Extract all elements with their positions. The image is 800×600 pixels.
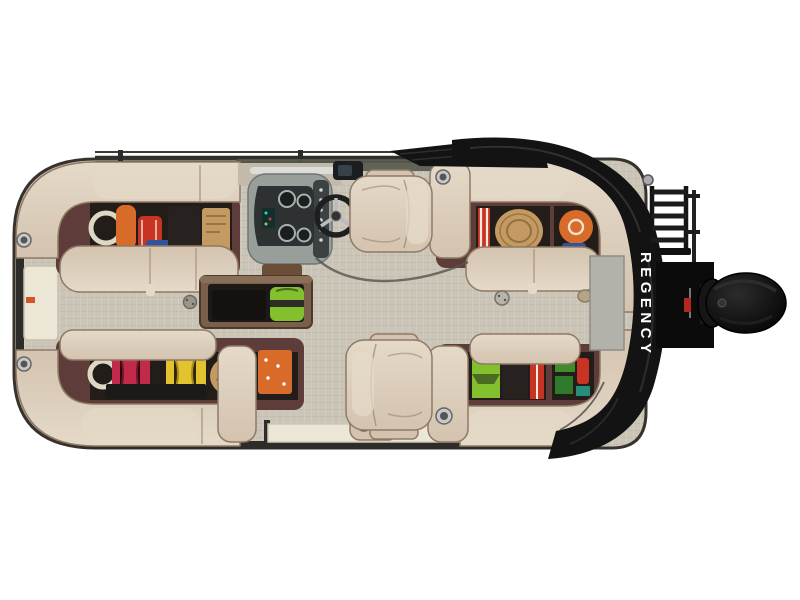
gauge — [298, 229, 311, 242]
stern-gate — [590, 256, 624, 350]
pull-tab — [146, 284, 155, 296]
gear-duffel-dark — [212, 290, 266, 320]
outboard-motor — [656, 262, 786, 348]
brand-logo: REGENCY — [637, 252, 654, 356]
gate-latch — [26, 297, 35, 303]
headrest — [406, 184, 428, 244]
gauge — [279, 191, 295, 207]
deck-fitting — [495, 291, 509, 305]
gear-rope-coil-orange — [559, 210, 593, 244]
bolster-pillow — [92, 167, 236, 199]
mount-red-tag — [684, 298, 691, 312]
gear-duffel-black — [168, 206, 200, 252]
gear-bottle-red — [577, 358, 589, 384]
headrest — [352, 352, 374, 416]
boat-illustration: REGENCY — [0, 0, 800, 600]
cushion-bottom-left — [60, 330, 216, 360]
multifunction-display — [262, 208, 275, 228]
storage-top-left — [90, 200, 232, 252]
bolster-pillow — [82, 408, 200, 440]
captain-chair — [350, 170, 432, 252]
motor-emblem — [718, 299, 726, 307]
companion-chair — [346, 334, 432, 439]
armrest-left — [428, 346, 468, 442]
pontoon-boat-photo: REGENCY — [0, 0, 800, 600]
pull-tab — [528, 283, 537, 294]
gauge — [298, 195, 311, 208]
gauge — [279, 225, 295, 241]
gear-fender-orange — [116, 205, 136, 249]
gear-crate-green2 — [555, 376, 573, 394]
gear-box-orange — [258, 350, 292, 394]
floor-storage — [200, 276, 312, 328]
armrest-right — [218, 346, 256, 442]
gear-bag-green-large — [270, 287, 304, 321]
windshield — [250, 167, 338, 174]
deck-fitting — [184, 296, 197, 309]
cushion-bottom-right — [470, 334, 580, 364]
table-top-black — [106, 384, 206, 399]
